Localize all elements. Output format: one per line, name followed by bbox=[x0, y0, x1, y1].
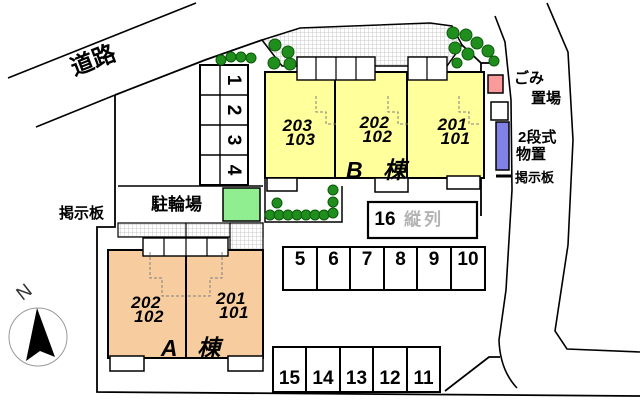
unit-label-b-202-102: 202 102 bbox=[347, 116, 402, 144]
garbage-box-icon bbox=[488, 75, 503, 93]
storage-box-icon bbox=[496, 122, 509, 170]
garbage-label-line2: 置場 bbox=[531, 91, 561, 107]
building-a-name: A 棟 bbox=[148, 329, 233, 363]
unit-label-a-202-102: 202 102 bbox=[118, 296, 174, 324]
parking-number-14: 14 bbox=[306, 364, 340, 390]
parking-number-13: 13 bbox=[340, 364, 373, 390]
parking-number-3: 3 bbox=[218, 125, 248, 155]
side-fixtures bbox=[488, 75, 511, 176]
site-plan: 道路 N 掲示板 駐輪場 ごみ 置場 2段式 物置 掲示板 203 103 20… bbox=[0, 0, 640, 404]
unit-label-a-201-101: 201 101 bbox=[203, 292, 259, 320]
garbage-label-line1: ごみ bbox=[514, 71, 544, 87]
parking-number-16: 16 bbox=[370, 206, 400, 234]
tandem-note: 縦列 bbox=[404, 211, 444, 229]
storage-label-line2: 物置 bbox=[516, 147, 546, 163]
parking-number-9: 9 bbox=[417, 249, 451, 273]
bicycle-parking-pad bbox=[223, 188, 260, 221]
storage-label-line1: 2段式 bbox=[518, 130, 556, 146]
parking-number-1: 1 bbox=[218, 65, 248, 95]
parking-number-6: 6 bbox=[317, 249, 350, 273]
parking-number-4: 4 bbox=[218, 155, 248, 185]
building-b-name: B 棟 bbox=[336, 151, 416, 185]
parking-number-10: 10 bbox=[451, 249, 485, 273]
parking-number-5: 5 bbox=[283, 249, 317, 273]
parking-number-11: 11 bbox=[407, 364, 440, 390]
white-box-icon bbox=[491, 102, 508, 120]
compass-icon bbox=[9, 308, 67, 366]
bulletin-board-right-label: 掲示板 bbox=[515, 171, 554, 185]
right-road-lines bbox=[495, 3, 640, 388]
unit-label-b-203-103: 203 103 bbox=[270, 119, 325, 147]
unit-label-b-201-101: 201 101 bbox=[425, 118, 480, 146]
north-arrow-icon bbox=[26, 308, 55, 361]
parking-number-15: 15 bbox=[273, 364, 306, 390]
parking-number-12: 12 bbox=[373, 364, 407, 390]
parking-number-7: 7 bbox=[350, 249, 384, 273]
bulletin-board-left-label: 掲示板 bbox=[59, 206, 104, 222]
bicycle-parking-label: 駐輪場 bbox=[151, 196, 202, 214]
parking-number-8: 8 bbox=[384, 249, 417, 273]
parking-number-2: 2 bbox=[218, 95, 248, 125]
